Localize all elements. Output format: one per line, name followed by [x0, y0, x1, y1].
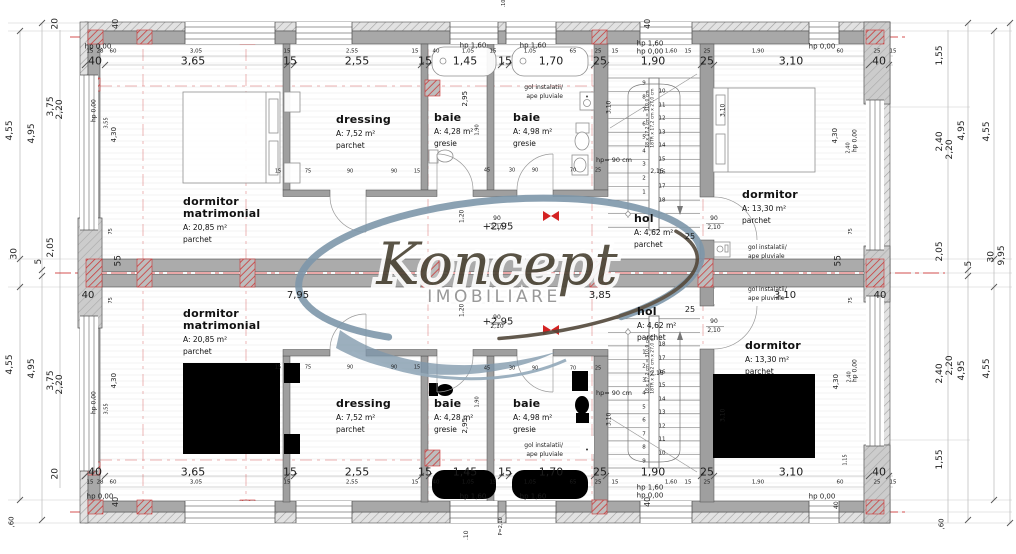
annotation-label: hp 0,00 — [853, 129, 859, 152]
dim-label: 4,95 — [28, 358, 37, 378]
annotation-label: 30 — [509, 169, 515, 174]
stair-number: 8 — [642, 446, 646, 452]
annotation-label: ape pluviale — [748, 254, 785, 260]
annotation-label: 2,10 — [707, 225, 720, 231]
dim-label: 40 — [433, 49, 440, 55]
annotation-label: ,60 — [8, 516, 15, 527]
dim-label: 2,40 — [936, 131, 945, 151]
stair-note: 18TR x 17,2 cm x 27,0 cm — [651, 334, 656, 393]
room-label: holA: 4,62 m²parchet — [634, 213, 673, 249]
room-name: dormitor — [745, 340, 801, 352]
dim-label: 15 — [418, 56, 432, 67]
room-finish: gresie — [434, 139, 473, 148]
room-label: baieA: 4,98 m²gresie — [513, 398, 552, 434]
room-area: A: 4,28 m² — [434, 127, 473, 136]
annotation-label: P=2,10 — [499, 517, 504, 535]
annotation-label: gol instalatii/ — [524, 85, 563, 91]
dim-label: 28 — [97, 480, 104, 486]
dim-label: 1,05 — [524, 480, 536, 486]
annotation-label: 40 — [82, 291, 95, 301]
room-finish: parchet — [183, 235, 260, 244]
dim-label: 15 — [890, 480, 897, 486]
room-area: A: 7,52 m² — [336, 129, 391, 138]
dim-label: 40 — [88, 467, 102, 478]
dim-label: 1,45 — [453, 467, 478, 478]
dim-label: 5 — [965, 261, 974, 267]
room-finish: parchet — [336, 425, 391, 434]
annotation-label: ape pluviale — [526, 452, 563, 458]
annotation-label: hp 0,00 — [809, 494, 836, 501]
stair-number: 18 — [659, 343, 666, 349]
annotation-label: 55 — [114, 255, 123, 266]
dim-label: 40 — [872, 467, 886, 478]
dim-label: 15 — [284, 49, 291, 55]
annotation-label: .10 — [464, 530, 470, 540]
watermark-subtitle: IMOBILIARE — [427, 287, 560, 307]
annotation-label: 15 — [414, 170, 420, 175]
stair-number: 11 — [659, 103, 666, 109]
dim-label: 25 — [593, 56, 607, 67]
dim-label: 2,55 — [345, 467, 370, 478]
annotation-label: 2,10 — [490, 324, 503, 330]
stair-number: 6 — [642, 419, 646, 425]
dim-label: 15 — [498, 467, 512, 478]
annotation-label: ,60 — [938, 518, 945, 529]
annotation-label: .10 — [502, 0, 507, 8]
annotation-label: 90 — [532, 169, 538, 174]
room-name: dormitor matrimonial — [183, 196, 260, 220]
annotation-label: 1,15 — [843, 454, 848, 465]
annotation-label: 15 — [275, 170, 281, 175]
dim-label: 1,60 — [665, 49, 677, 55]
room-area: A: 4,98 m² — [513, 413, 552, 422]
annotation-label: 40 — [112, 19, 120, 29]
annotation-label: 7,95 — [287, 291, 309, 301]
room-area: A: 4,62 m² — [637, 321, 676, 330]
dim-label: 5 — [35, 259, 44, 265]
dim-label: 15 — [283, 56, 297, 67]
dim-label: 2,20 — [946, 139, 955, 159]
annotation-label: 3,10 — [606, 413, 612, 426]
room-name: baie — [513, 112, 552, 124]
dim-label: 40 — [433, 480, 440, 486]
annotation-label: 2,95 — [462, 91, 469, 107]
dim-label: 15 — [412, 480, 419, 486]
stair-number: 3 — [642, 163, 646, 169]
room-finish: parchet — [637, 333, 676, 342]
annotation-label: 40 — [834, 501, 840, 509]
room-label: baieA: 4,98 m²gresie — [513, 112, 552, 148]
dim-label: 3,10 — [779, 467, 804, 478]
dim-label: 15 — [418, 467, 432, 478]
annotation-label: 3,10 — [606, 101, 612, 114]
annotation-label: 45 — [484, 169, 490, 174]
dim-label: 30 — [987, 251, 996, 262]
dim-label: 15 — [498, 56, 512, 67]
stair-number: 2 — [642, 176, 646, 182]
dim-label: 20 — [51, 468, 60, 479]
dim-label: 25 — [700, 467, 714, 478]
room-finish: parchet — [742, 216, 798, 225]
room-area: A: 20,85 m² — [183, 223, 260, 232]
room-label: baieA: 4,28 m²gresie — [434, 112, 473, 148]
dim-label: 1,60 — [665, 480, 677, 486]
annotation-label: 25 — [685, 306, 695, 314]
dim-label: 4,95 — [958, 120, 967, 140]
floor-plan: Koncept IMOBILIARE dormitor matrimonialA… — [0, 0, 1016, 554]
annotation-label: 75 — [849, 297, 854, 303]
dim-label: 60 — [110, 480, 117, 486]
dim-label: 15 — [685, 49, 692, 55]
stair-number: 17 — [659, 184, 666, 190]
stair-number: 16 — [659, 171, 666, 177]
dim-label: 1,55 — [936, 45, 945, 65]
annotation-label: 4,30 — [833, 374, 840, 390]
room-finish: gresie — [513, 425, 552, 434]
room-finish: parchet — [745, 367, 801, 376]
stair-number: 12 — [659, 424, 666, 430]
room-label: dormitor matrimonialA: 20,85 m²parchet — [183, 196, 260, 244]
room-label: dormitorA: 13,30 m²parchet — [745, 340, 801, 376]
annotation-label: 3,10 — [720, 104, 726, 117]
stair-number: 15 — [659, 157, 666, 163]
annotation-label: 70 — [570, 169, 576, 174]
room-name: dressing — [336, 398, 391, 410]
annotation-label: 90 — [347, 366, 353, 371]
annotation-label: 3,55 — [104, 117, 109, 128]
annotation-label: 90 — [391, 170, 397, 175]
dim-label: 15 — [685, 480, 692, 486]
room-label: dressingA: 7,52 m²parchet — [336, 114, 391, 150]
annotation-label: 4,30 — [111, 373, 118, 389]
annotation-label: 90 — [391, 366, 397, 371]
dim-label: 25 — [595, 480, 602, 486]
dim-label: 25 — [700, 56, 714, 67]
annotation-label: 4,30 — [832, 128, 839, 144]
annotation-label: 1,90 — [475, 396, 480, 407]
dim-label: 3,05 — [190, 49, 202, 55]
dim-label: 3,65 — [181, 56, 206, 67]
stair-number: 10 — [659, 89, 666, 95]
room-area: A: 7,52 m² — [336, 413, 391, 422]
dim-label: 1,90 — [752, 49, 764, 55]
dim-label: 9,95 — [998, 245, 1007, 265]
annotation-label: 90 — [493, 315, 501, 321]
annotation-label: 90 — [532, 367, 538, 372]
dim-label: 15 — [283, 467, 297, 478]
annotation-label: gol instalatii/ — [748, 245, 787, 251]
annotation-label: 75 — [109, 228, 114, 234]
annotation-label: 4,30 — [111, 127, 118, 143]
annotation-label: 40 — [112, 497, 120, 507]
stair-number: 16 — [659, 370, 666, 376]
room-label: dormitorA: 13,30 m²parchet — [742, 189, 798, 225]
annotation-label: hp= 90 cm — [596, 157, 632, 164]
room-finish: parchet — [183, 347, 260, 356]
dim-label: 3,05 — [190, 480, 202, 486]
room-area: A: 4,62 m² — [634, 228, 673, 237]
room-name: baie — [513, 398, 552, 410]
dim-label: 1,05 — [524, 49, 536, 55]
stair-number: 13 — [659, 411, 666, 417]
room-finish: parchet — [336, 141, 391, 150]
room-area: A: 13,30 m² — [745, 355, 801, 364]
dim-label: 15 — [612, 480, 619, 486]
annotation-label: 3,55 — [104, 403, 109, 414]
annotation-label: hp 0,00 — [87, 494, 114, 501]
dim-label: 1,90 — [752, 480, 764, 486]
stair-number: 12 — [659, 116, 666, 122]
dim-label: 28 — [97, 49, 104, 55]
dim-label: 4,55 — [983, 121, 992, 141]
annotation-label: 75 — [109, 297, 114, 303]
annotation-label: 2,95 — [462, 418, 469, 434]
dim-label: 25 — [704, 49, 711, 55]
annotation-label: 75 — [849, 228, 854, 234]
annotation-label: 90 — [347, 170, 353, 175]
stair-number: 9 — [642, 81, 646, 87]
annotation-label: 2,10 — [707, 328, 720, 334]
dim-label: 15 — [490, 49, 497, 55]
stair-number: 14 — [659, 144, 666, 150]
dim-label: 1,70 — [539, 56, 564, 67]
dim-label: 2,55 — [345, 56, 370, 67]
dim-label: 2,05 — [47, 237, 56, 257]
room-name: hol — [637, 306, 676, 318]
dim-label: 25 — [874, 49, 881, 55]
dim-label: 25 — [595, 49, 602, 55]
room-name: dormitor matrimonial — [183, 308, 260, 332]
room-name: baie — [434, 398, 473, 410]
annotation-label: hp 0,00 — [809, 44, 836, 51]
dim-label: 25 — [704, 480, 711, 486]
room-name: dormitor — [742, 189, 798, 201]
dim-label: 2,20 — [946, 355, 955, 375]
dim-label: 65 — [570, 480, 577, 486]
room-label: holA: 4,62 m²parchet — [637, 306, 676, 342]
stair-number: 7 — [642, 432, 646, 438]
dim-label: 15 — [412, 49, 419, 55]
dim-label: 30 — [10, 248, 19, 259]
annotation-label: hp= 90 cm — [596, 390, 632, 397]
annotation-label: 90 — [493, 216, 501, 222]
dim-label: 4,55 — [983, 358, 992, 378]
dim-label: 2,20 — [56, 99, 65, 119]
annotation-label: ape pluviale — [526, 94, 563, 100]
annotation-label: 75 — [305, 170, 311, 175]
dim-label: 1,05 — [462, 49, 474, 55]
dim-label: 20 — [51, 18, 60, 29]
dim-label: 60 — [837, 480, 844, 486]
dim-label: 4,55 — [6, 354, 15, 374]
stair-number: 4 — [642, 149, 646, 155]
annotation-label: 90 — [710, 319, 718, 325]
room-name: baie — [434, 112, 473, 124]
annotation-label: 40 — [874, 291, 887, 301]
dim-label: 1,05 — [462, 480, 474, 486]
dim-label: 15 — [87, 480, 94, 486]
annotation-label: 15 — [414, 366, 420, 371]
annotation-label: 15 — [275, 366, 281, 371]
annotation-label: 40 — [644, 19, 652, 29]
dim-label: 1,90 — [641, 467, 666, 478]
stair-number: 17 — [659, 356, 666, 362]
annotation-label: 25 — [595, 169, 601, 174]
dim-label: 15 — [87, 49, 94, 55]
stair-number: 18 — [659, 198, 666, 204]
dim-label: 65 — [570, 49, 577, 55]
annotation-label: hp 0,00 — [92, 391, 98, 414]
dim-label: 25 — [593, 467, 607, 478]
dim-label: 15 — [284, 480, 291, 486]
annotation-label: hp 1,60 — [637, 41, 664, 48]
annotation-label: 1,20 — [459, 210, 465, 223]
dim-label: 1,45 — [453, 56, 478, 67]
annotation-label: hp 1,60 — [460, 494, 487, 501]
dim-label: 2,55 — [346, 480, 358, 486]
dim-label: 40 — [872, 56, 886, 67]
stair-number: 9 — [642, 459, 646, 465]
stair-number: 15 — [659, 383, 666, 389]
annotation-label: 2,40 — [846, 142, 851, 153]
dim-label: 15 — [612, 49, 619, 55]
annotation-label: 25 — [595, 367, 601, 372]
annotation-label: 40 — [644, 497, 652, 507]
dim-label: 2,40 — [936, 363, 945, 383]
room-name: hol — [634, 213, 673, 225]
stair-number: 10 — [659, 451, 666, 457]
annotation-label: 70 — [570, 367, 576, 372]
dim-label: 25 — [874, 480, 881, 486]
dim-label: 4,95 — [958, 360, 967, 380]
stair-number: 13 — [659, 130, 666, 136]
room-finish: gresie — [513, 139, 552, 148]
room-finish: parchet — [634, 240, 673, 249]
dim-label: 1,70 — [539, 467, 564, 478]
dim-label: 60 — [110, 49, 117, 55]
dim-label: 40 — [88, 56, 102, 67]
annotation-label: 75 — [305, 366, 311, 371]
annotation-label: 90 — [710, 216, 718, 222]
stair-number: 5 — [642, 405, 646, 411]
dim-label: 15 — [490, 480, 497, 486]
room-label: dressingA: 7,52 m²parchet — [336, 398, 391, 434]
stair-note: 18TR x 17,2 cm x 27,0 cm — [651, 88, 656, 147]
annotation-label: 45 — [484, 367, 490, 372]
annotation-label: hp 1,60 — [520, 494, 547, 501]
dim-label: 4,55 — [6, 120, 15, 140]
dim-label: 2,55 — [346, 49, 358, 55]
annotation-label: 55 — [834, 255, 843, 266]
room-name: dressing — [336, 114, 391, 126]
room-area: A: 13,30 m² — [742, 204, 798, 213]
dim-label: 2,05 — [936, 241, 945, 261]
annotation-label: 25 — [685, 233, 695, 241]
dim-label: 3,65 — [181, 467, 206, 478]
dim-label: 3,10 — [779, 56, 804, 67]
stair-number: 11 — [659, 438, 666, 444]
annotation-label: 1,20 — [459, 304, 465, 317]
room-area: A: 20,85 m² — [183, 335, 260, 344]
annotation-label: 3,85 — [589, 291, 611, 301]
annotation-label: 2,40 — [847, 371, 852, 382]
stair-number: 14 — [659, 397, 666, 403]
annotation-label: gol instalatii/ — [524, 443, 563, 449]
room-label: dormitor matrimonialA: 20,85 m²parchet — [183, 308, 260, 356]
annotation-label: 1,90 — [475, 124, 480, 135]
annotation-label: 3,10 — [720, 409, 726, 422]
dim-label: 1,90 — [641, 56, 666, 67]
dim-label: 4,95 — [28, 123, 37, 143]
annotation-label: 30 — [509, 367, 515, 372]
annotation-label: 3,10 — [774, 291, 796, 301]
dim-label: 60 — [837, 49, 844, 55]
annotation-label: hp 1,60 — [637, 485, 664, 492]
dim-label: 2,20 — [56, 374, 65, 394]
stair-number: 1 — [642, 190, 646, 196]
dim-label: 1,55 — [936, 449, 945, 469]
annotation-label: hp 0,00 — [853, 359, 859, 382]
annotation-label: 2,10 — [490, 225, 503, 231]
room-area: A: 4,98 m² — [513, 127, 552, 136]
dim-label: 15 — [890, 49, 897, 55]
annotation-label: hp 0,00 — [92, 99, 98, 122]
